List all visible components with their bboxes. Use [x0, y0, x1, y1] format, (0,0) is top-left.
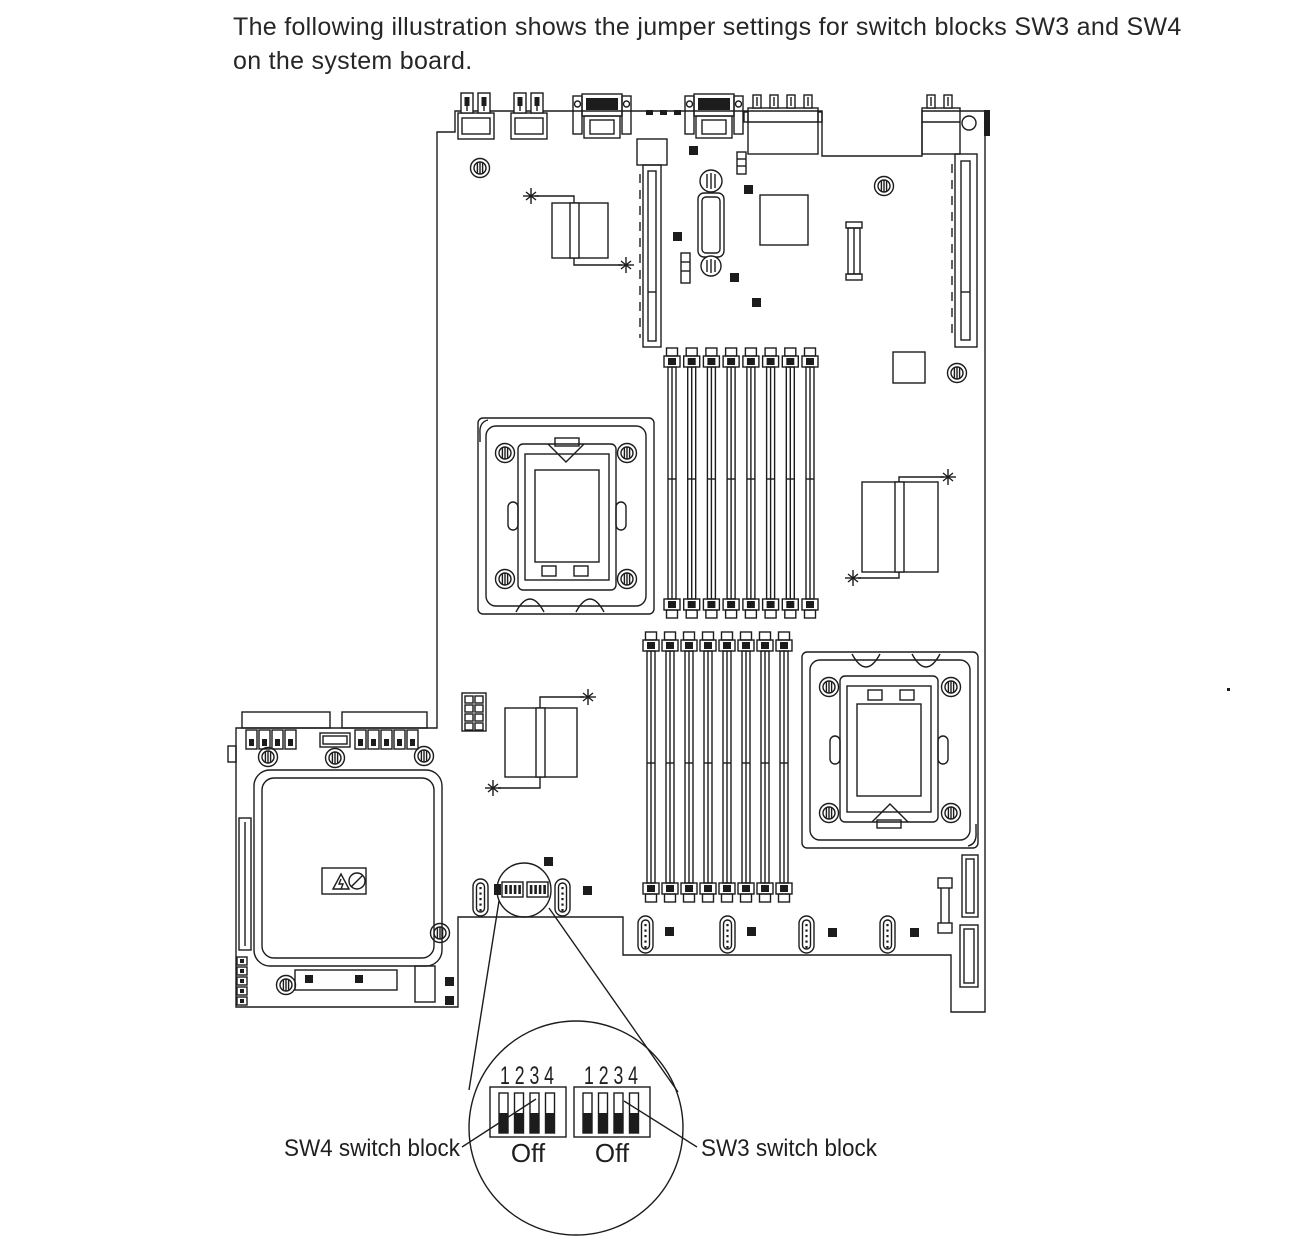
oval-connector: [555, 879, 570, 916]
connector-cell: [285, 730, 296, 749]
usb-plug-icon: [531, 93, 543, 113]
ethernet-connector: [744, 95, 822, 154]
sw3-callout-label: SW3 switch block: [701, 1135, 878, 1162]
connector-cell: [407, 730, 418, 749]
usb-connector-2: [511, 93, 547, 139]
oval-connector: [720, 916, 735, 953]
heatpipe-anchor-icon: [845, 570, 861, 586]
component-pad: [828, 928, 837, 937]
power-connector-8pin: [462, 693, 486, 731]
sw4-switch-numbers: 1 2 3 4: [500, 1062, 554, 1090]
prong-icon: [770, 95, 778, 108]
component-pad: [445, 996, 454, 1005]
aux-port-connector: [922, 95, 960, 154]
oval-connector: [880, 916, 895, 953]
connector-cell: [381, 730, 392, 749]
component-pad: [747, 927, 756, 936]
battery: [698, 170, 724, 276]
heatsink-2: [845, 469, 956, 586]
usb-plug-icon: [461, 93, 473, 113]
connector-cell: [246, 730, 257, 749]
sw3-off-label: Off: [595, 1138, 630, 1168]
screw-holes: [431, 159, 967, 943]
vga-connector: [573, 94, 631, 138]
screw-hole-icon: [948, 364, 967, 383]
prong-icon: [753, 95, 761, 108]
dimm-slot: [719, 632, 735, 902]
usb-connector-1: [458, 93, 494, 139]
heatpipe-anchor-icon: [940, 469, 956, 485]
warning-label: [322, 868, 366, 894]
screw-hole-icon: [277, 976, 296, 995]
sw3-switch-block-on-board: [527, 882, 548, 897]
screw-hole-icon: [259, 748, 278, 767]
power-module: [228, 712, 454, 1005]
heatsink-3: [485, 689, 596, 796]
sw4-switch-block: [490, 1087, 566, 1137]
prong-icon: [787, 95, 795, 108]
usb-plug-icon: [514, 93, 526, 113]
screw-hole-icon: [471, 159, 490, 178]
dimm-slot: [681, 632, 697, 902]
heatsink-1: [523, 188, 634, 273]
connector-cell: [368, 730, 379, 749]
dimm-slot: [802, 348, 818, 618]
dimm-bank-1: [664, 348, 818, 618]
usb-plug-icon: [478, 93, 490, 113]
riser-slot-2: [952, 154, 977, 347]
dimm-slot: [757, 632, 773, 902]
bottom-right-connectors: [938, 855, 978, 987]
serial-connector: [685, 94, 743, 138]
connector-cell: [394, 730, 405, 749]
dimm-slot: [743, 348, 759, 618]
oval-connector: [799, 916, 814, 953]
module-left-pads: [237, 957, 247, 1005]
oval-connector: [638, 916, 653, 953]
dimm-slot: [703, 348, 719, 618]
cpu-socket-2: [802, 652, 978, 848]
dimm-bank-2: [643, 632, 792, 902]
dimm-slot: [700, 632, 716, 902]
heatpipe-anchor-icon: [580, 689, 596, 705]
dimm-slot: [738, 632, 754, 902]
board-outline: [236, 111, 985, 1012]
screw-hole-icon: [875, 177, 894, 196]
dimm-slot: [782, 348, 798, 618]
dimm-slot: [664, 348, 680, 618]
connector-cell: [355, 730, 366, 749]
component-pad: [583, 886, 592, 895]
component-pad: [445, 977, 454, 986]
dimm-slot: [684, 348, 700, 618]
component-pad: [544, 857, 553, 866]
prong-icon: [804, 95, 812, 108]
screw-hole-icon: [326, 749, 345, 768]
chip-small: [893, 352, 925, 383]
small-header-connector: [737, 152, 746, 174]
documentation-page: The following illustration shows the jum…: [0, 0, 1313, 1245]
screw-hole-icon: [415, 747, 434, 766]
heatpipe-anchor-icon: [618, 257, 634, 273]
component-pad: [665, 927, 674, 936]
component-pad: [910, 928, 919, 937]
heatpipe-anchor-icon: [485, 780, 501, 796]
sw4-callout-label: SW4 switch block: [284, 1135, 461, 1162]
zoom-cone-line-left: [469, 901, 499, 1090]
cpu-socket-1: [478, 418, 654, 614]
connector-cell: [272, 730, 283, 749]
oval-connector: [473, 879, 488, 916]
sw3-switch-numbers: 1 2 3 4: [584, 1062, 638, 1090]
component-pad: [730, 273, 739, 282]
chip-large: [760, 195, 808, 245]
connector-cell: [259, 730, 270, 749]
prong-icon: [944, 95, 952, 108]
component-pad: [689, 146, 698, 155]
heatpipe-anchor-icon: [523, 188, 539, 204]
dimm-slot: [723, 348, 739, 618]
component-pad: [752, 298, 761, 307]
sw4-switch-block-on-board: [502, 882, 523, 897]
dimm-slot: [643, 632, 659, 902]
mounting-hole: [962, 116, 976, 130]
component-pad: [673, 232, 682, 241]
riser-slot-1: [637, 139, 667, 347]
dash-pads: [646, 110, 681, 115]
small-vertical-connector: [681, 253, 690, 283]
sw3-switch-block: [574, 1087, 650, 1137]
dimm-slot: [763, 348, 779, 618]
dimm-slot: [662, 632, 678, 902]
electrical-hazard-icon: [333, 874, 349, 889]
mid-right-connector: [846, 222, 862, 280]
prong-icon: [927, 95, 935, 108]
system-board-illustration: 1 2 3 4 1 2 3 4 Off Off SW4 switch block…: [0, 0, 1313, 1245]
dimm-slot: [776, 632, 792, 902]
print-speck: [1227, 688, 1230, 691]
no-touch-icon: [349, 873, 365, 889]
switch-area: [494, 863, 551, 917]
sw4-off-label: Off: [511, 1138, 546, 1168]
edge-tab: [984, 110, 990, 136]
component-pad: [744, 185, 753, 194]
